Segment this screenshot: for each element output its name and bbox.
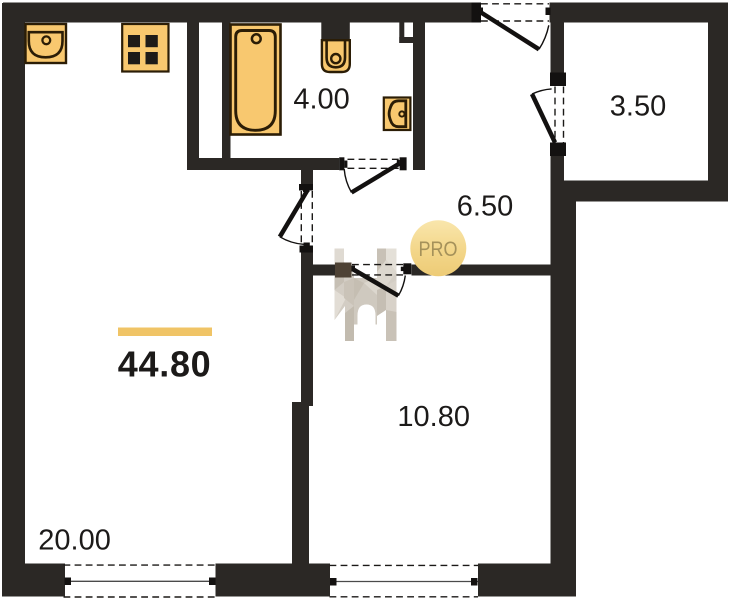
svg-text:20.00: 20.00 <box>38 525 111 557</box>
svg-text:44.80: 44.80 <box>118 343 212 384</box>
svg-text:10.80: 10.80 <box>397 401 470 433</box>
svg-text:3.50: 3.50 <box>610 90 666 122</box>
svg-text:4.00: 4.00 <box>293 84 349 116</box>
svg-text:6.50: 6.50 <box>457 191 513 223</box>
svg-text:PRO: PRO <box>419 238 458 261</box>
